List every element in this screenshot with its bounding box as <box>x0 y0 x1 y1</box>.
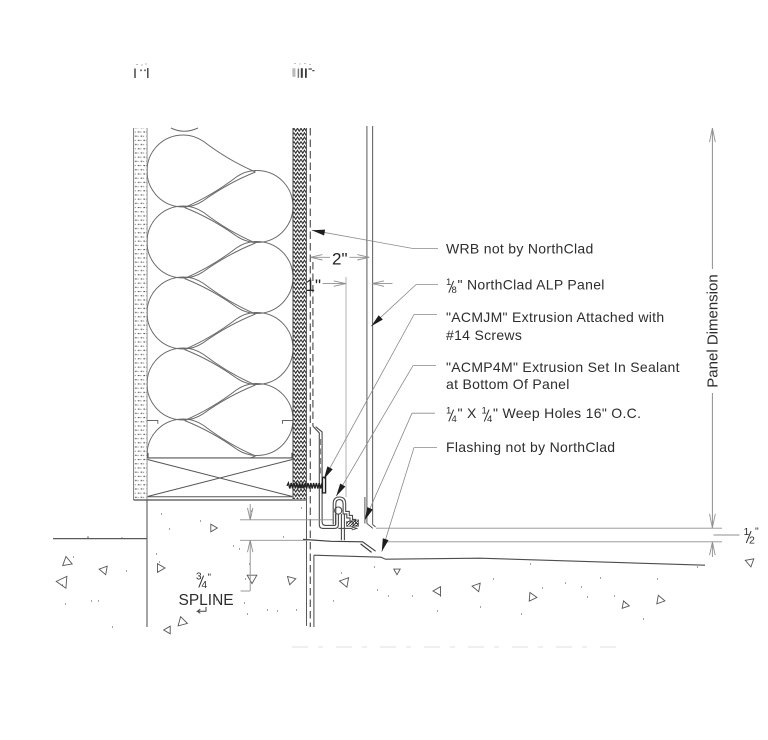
svg-text:" NorthClad ALP Panel: " NorthClad ALP Panel <box>458 276 605 292</box>
svg-text:" Weep Holes 16" O.C.: " Weep Holes 16" O.C. <box>493 405 641 421</box>
svg-text:1: 1 <box>482 406 487 417</box>
svg-text:1": 1" <box>306 276 322 295</box>
svg-text:"ACMJM" Extrusion Attached wit: "ACMJM" Extrusion Attached with <box>446 309 664 325</box>
svg-text:"ACMP4M" Extrusion Set In Seal: "ACMP4M" Extrusion Set In Sealant <box>446 359 680 375</box>
svg-text:SPLINE: SPLINE <box>179 592 234 609</box>
svg-text:at Bottom Of Panel: at Bottom Of Panel <box>446 376 570 392</box>
svg-text:1: 1 <box>446 406 451 417</box>
svg-text:1: 1 <box>446 277 451 288</box>
svg-text:4: 4 <box>452 414 457 425</box>
svg-text:": " <box>755 526 759 538</box>
svg-text:Panel Dimension: Panel Dimension <box>704 274 721 387</box>
svg-text:2": 2" <box>332 250 348 269</box>
svg-text:4: 4 <box>487 414 492 425</box>
svg-text:WRB not by NorthClad: WRB not by NorthClad <box>446 240 594 256</box>
svg-text:Flashing not by NorthClad: Flashing not by NorthClad <box>446 439 615 455</box>
svg-text:" X: " X <box>458 405 477 421</box>
svg-text:": " <box>208 573 212 584</box>
svg-text:8: 8 <box>452 285 457 296</box>
svg-text:#14 Screws: #14 Screws <box>446 327 522 343</box>
